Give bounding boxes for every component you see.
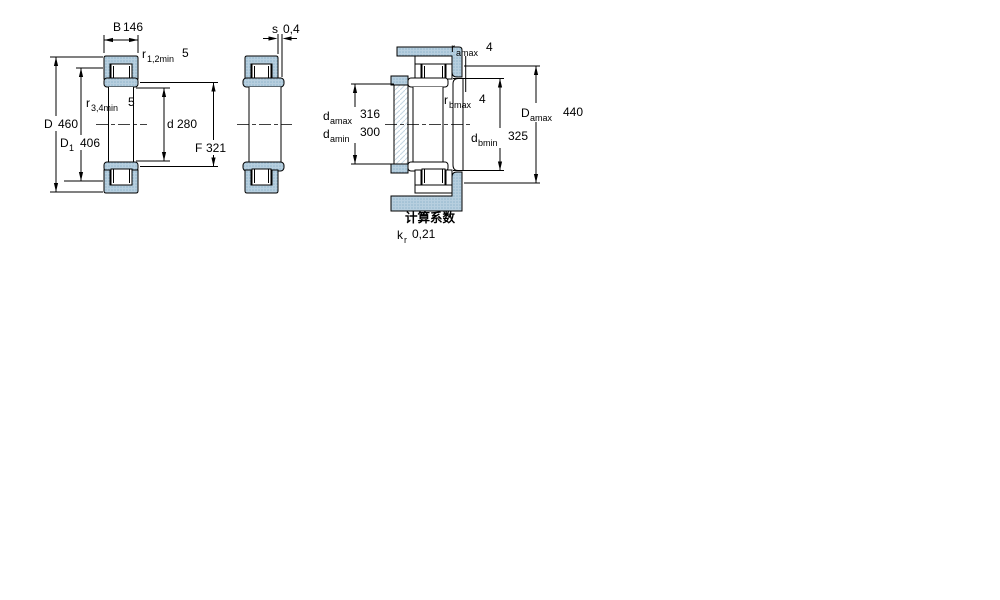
dim-D-value: 460 xyxy=(58,117,78,131)
dim-rbmax-value: 4 xyxy=(479,92,486,106)
dim-Damax-label: D xyxy=(521,106,530,120)
dim-D1-sub: 1 xyxy=(69,143,74,153)
kr-label: k xyxy=(397,228,404,242)
dim-F-value: 321 xyxy=(206,141,226,155)
middle-figure-axial-displacement: s 0,4 xyxy=(237,22,300,193)
dim-r12-value: 5 xyxy=(182,46,189,60)
calculation-factors-heading: 计算系数 xyxy=(405,210,456,225)
dim-D-label: D xyxy=(44,117,53,131)
right-figure-abutment: r amax 4 r bmax 4 d amax 316 d amin 300 … xyxy=(323,40,583,245)
kr-sub: r xyxy=(404,235,407,245)
dim-damin-label: d xyxy=(323,127,330,141)
bearing-dimension-drawing: B 146 r 1,2min 5 r 3,4min 5 D 460 D 1 40… xyxy=(0,0,1000,600)
dim-d-value: 280 xyxy=(177,117,197,131)
dim-damax-label: d xyxy=(323,109,330,123)
dim-dbmin-value: 325 xyxy=(508,129,528,143)
dim-r12-label: r xyxy=(142,47,146,61)
outer-ring-flange xyxy=(446,170,452,185)
outer-ring-top xyxy=(415,56,452,64)
dim-s-value: 0,4 xyxy=(283,22,300,36)
dim-B-value: 146 xyxy=(123,20,143,34)
dim-Damax-value: 440 xyxy=(563,105,583,119)
dim-damin-sub: amin xyxy=(330,134,350,144)
dim-r12-sub: 1,2min xyxy=(147,54,174,64)
dim-Damax-sub: amax xyxy=(530,113,553,123)
left-figure-bearing-section: B 146 r 1,2min 5 r 3,4min 5 D 460 D 1 40… xyxy=(44,20,226,193)
dim-F-label: F xyxy=(195,141,202,155)
dim-r34-value: 5 xyxy=(128,95,135,109)
dim-ramax-label: r xyxy=(451,41,455,55)
inner-ring-raceway-top xyxy=(104,78,138,87)
roller-bottom xyxy=(422,169,445,185)
dim-D1-label: D xyxy=(60,136,69,150)
outer-ring-flange xyxy=(415,170,421,185)
dim-r34-label: r xyxy=(86,96,90,110)
dim-damin-value: 300 xyxy=(360,125,380,139)
dim-rbmax-sub: bmax xyxy=(449,100,472,110)
roller-bottom xyxy=(111,169,132,185)
outer-ring-bottom xyxy=(415,185,452,193)
dim-D1-value: 406 xyxy=(80,136,100,150)
dim-ramax-value: 4 xyxy=(486,40,493,54)
dim-r34-sub: 3,4min xyxy=(91,103,118,113)
drawing-canvas: B 146 r 1,2min 5 r 3,4min 5 D 460 D 1 40… xyxy=(0,0,1000,600)
outer-ring-flange xyxy=(415,64,421,79)
inner-ring-raceway-top xyxy=(243,78,284,87)
dim-dbmin-sub: bmin xyxy=(478,138,498,148)
dim-s-label: s xyxy=(272,22,278,36)
dim-damax-value: 316 xyxy=(360,107,380,121)
outer-ring-flange xyxy=(446,64,452,79)
dim-B-label: B xyxy=(113,20,121,34)
kr-value: 0,21 xyxy=(412,227,436,241)
dim-rbmax-label: r xyxy=(444,93,448,107)
dim-ramax-sub: amax xyxy=(456,48,479,58)
inner-ring-raceway-top xyxy=(408,78,448,87)
shaft-shoulder-bottom xyxy=(391,164,408,173)
dim-d-label: d xyxy=(167,117,174,131)
dim-dbmin-label: d xyxy=(471,131,478,145)
dim-damax-sub: amax xyxy=(330,116,353,126)
